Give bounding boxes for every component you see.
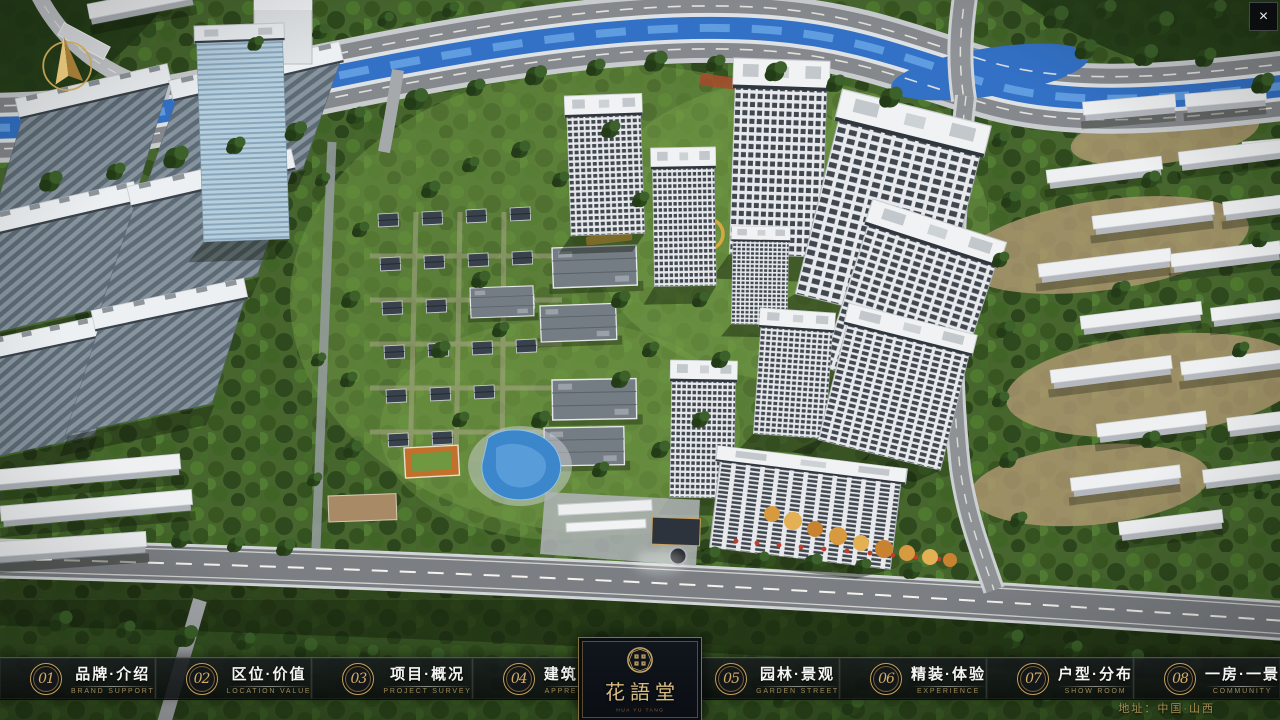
divider: [227, 686, 312, 687]
nav-item-subtitle: BRAND SUPPORT: [71, 688, 155, 695]
nav-item-garden-landscape[interactable]: 05 园林·景观GARDEN STREET: [684, 658, 839, 699]
nav-group-right: 05 园林·景观GARDEN STREET 06 精装·体验EXPERIENCE…: [684, 658, 1280, 699]
close-icon: ×: [1259, 9, 1268, 25]
project-logo-panel[interactable]: 花語堂 HUA YU TANG: [578, 637, 702, 720]
project-name-caption: HUA YU TANG: [616, 708, 664, 713]
divider: [71, 686, 155, 687]
nav-item-title: 户型·分布: [1058, 663, 1133, 684]
nav-item-subtitle: SHOW ROOM: [1065, 688, 1127, 695]
divider: [911, 686, 986, 687]
seal-emblem-icon: [626, 646, 654, 674]
nav-item-brand-intro[interactable]: 01 品牌·介绍BRAND SUPPORT: [0, 658, 155, 699]
nav-number-badge: 06: [870, 663, 902, 695]
nav-item-title: 品牌·介绍: [75, 663, 150, 684]
nav-item-fine-decor[interactable]: 06 精装·体验EXPERIENCE: [839, 658, 986, 699]
nav-item-subtitle: LOCATION VALUE: [227, 688, 312, 695]
nav-item-subtitle: EXPERIENCE: [917, 688, 980, 695]
nav-group-left: 01 品牌·介绍BRAND SUPPORT 02 区位·价值LOCATION V…: [0, 658, 577, 699]
nav-number-badge: 07: [1017, 663, 1049, 695]
address-text: 地址：中国·山西: [1118, 700, 1215, 716]
nav-item-title: 精装·体验: [911, 663, 986, 684]
nav-item-subtitle: PROJECT SURVEY: [383, 688, 471, 695]
project-name: 花語堂: [600, 676, 680, 705]
nav-number-badge: 02: [186, 663, 218, 695]
compass-icon: [36, 30, 98, 98]
nav-item-title: 项目·概况: [390, 663, 465, 684]
divider: [756, 686, 839, 687]
nav-item-subtitle: GARDEN STREET: [756, 688, 839, 695]
scene-3d-view[interactable]: [0, 0, 1280, 720]
nav-item-unit-layout[interactable]: 07 户型·分布SHOW ROOM: [986, 658, 1133, 699]
nav-number-badge: 08: [1164, 663, 1196, 695]
nav-item-room-view[interactable]: 08 一房·一景COMMUNITY: [1133, 658, 1280, 699]
nav-item-location-value[interactable]: 02 区位·价值LOCATION VALUE: [155, 658, 312, 699]
divider: [1058, 686, 1133, 687]
nav-item-title: 园林·景观: [760, 663, 835, 684]
nav-item-title: 一房·一景: [1205, 663, 1280, 684]
divider: [383, 686, 471, 687]
nav-item-project-survey[interactable]: 03 项目·概况PROJECT SURVEY: [311, 658, 471, 699]
nav-number-badge: 01: [30, 663, 62, 695]
nav-number-badge: 04: [503, 663, 535, 695]
close-button[interactable]: ×: [1249, 2, 1278, 31]
nav-item-title: 区位·价值: [231, 663, 306, 684]
divider: [1205, 686, 1280, 687]
nav-item-subtitle: COMMUNITY: [1213, 688, 1272, 695]
presentation-window: × 01 品牌·介绍BRAND SUPPORT 02 区位·价值LOCATION…: [0, 0, 1280, 720]
nav-number-badge: 05: [715, 663, 747, 695]
nav-number-badge: 03: [342, 663, 374, 695]
vignette: [0, 0, 1280, 720]
